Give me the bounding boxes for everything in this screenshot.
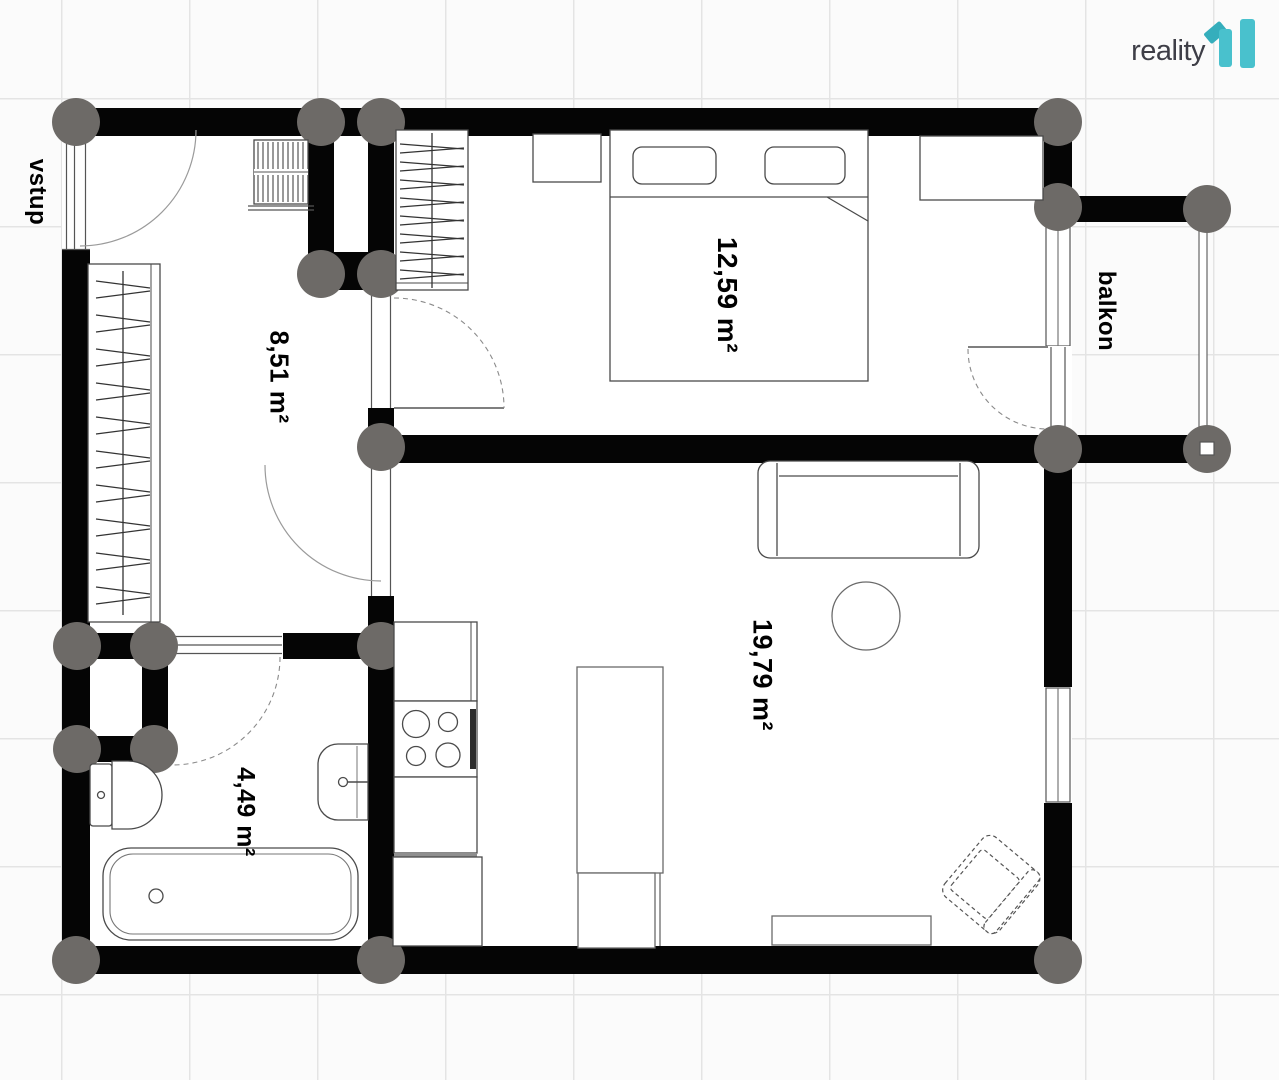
- kitchen-counter-3: [393, 857, 482, 946]
- dining-bench: [578, 873, 655, 948]
- hall-area-label: 8,51 m²: [264, 330, 295, 423]
- brand-name: reality: [1131, 37, 1205, 66]
- bedroom-dresser: [920, 136, 1043, 200]
- living-area-label: 19,79 m²: [747, 619, 778, 731]
- bathtub-inner: [110, 854, 351, 934]
- kitchen-stove: [394, 701, 477, 777]
- wall-bottom: [62, 946, 1072, 974]
- toilet-button: [98, 792, 105, 799]
- floor-plan-canvas: vstup 8,51 m² 12,59 m² balkon 4,49 m² 19…: [0, 0, 1279, 1080]
- floor-plan-drawing: [0, 0, 1279, 1080]
- wall-bath-kitchen: [368, 646, 394, 948]
- wall-top: [62, 108, 1072, 136]
- railing-end-post: [1200, 442, 1214, 455]
- nightstand: [533, 134, 601, 182]
- round-table: [832, 582, 900, 650]
- burner: [439, 713, 458, 732]
- sink-faucet: [339, 778, 348, 787]
- railing-bar: [1199, 211, 1207, 449]
- entrance-label: vstup: [23, 159, 51, 226]
- wall-divider-bedroom-living: [368, 435, 1212, 463]
- pillow-left: [633, 147, 716, 184]
- kitchen: [393, 622, 482, 946]
- brand-logo: reality: [1131, 18, 1263, 70]
- oven-handle: [470, 709, 476, 769]
- dining-table: [577, 667, 663, 873]
- balcony-door-opening: [1044, 346, 1072, 433]
- logo-bar-one: [1219, 29, 1232, 67]
- pillow-right: [765, 147, 845, 184]
- logo-bar-two: [1240, 19, 1255, 68]
- kitchen-counter-1: [394, 622, 477, 701]
- bedroom-area-label: 12,59 m²: [711, 237, 743, 353]
- burner: [407, 747, 426, 766]
- burner: [436, 743, 460, 767]
- bathroom-area-label: 4,49 m²: [231, 767, 260, 857]
- logo-mark-11: [1207, 18, 1263, 70]
- tv-shelf: [772, 916, 931, 945]
- hall-wardrobe: [88, 264, 160, 622]
- kitchen-counter-2: [394, 777, 477, 853]
- burner: [403, 711, 430, 738]
- bathtub-drain: [149, 889, 163, 903]
- balcony-label: balkon: [1092, 271, 1120, 351]
- balcony-railing: [1199, 211, 1207, 449]
